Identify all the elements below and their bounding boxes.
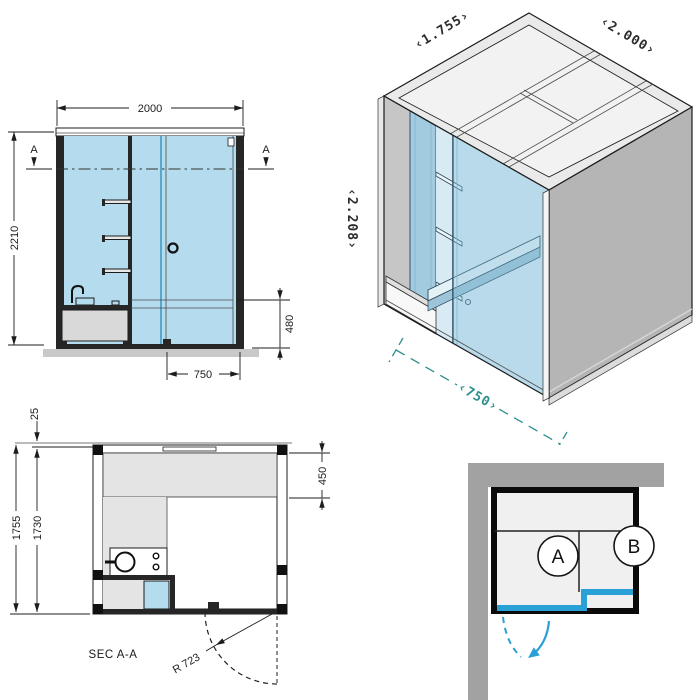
isometric-view: ‹1.755› ‹2.000› ‹2.208› ‹750› — [330, 0, 700, 445]
dim-label-radius: R 723 — [171, 651, 202, 676]
plan-sink-unit — [105, 548, 167, 577]
iso-dim-door: ‹750› — [455, 380, 501, 415]
dim-label-overhang: 25 — [29, 408, 41, 420]
iso-dim-depth: ‹1.755› — [412, 8, 473, 53]
sink-basin-icon — [116, 553, 135, 572]
zone-a-circle: A — [538, 536, 578, 576]
section-label: A — [262, 144, 270, 156]
plan-section-view: R 723 25 1755 1730 — [0, 400, 360, 700]
right-post — [236, 136, 244, 349]
iso-dim-height: ‹2.208› — [344, 188, 359, 250]
front-corner-post — [543, 190, 549, 401]
plan-shower-glass — [144, 581, 169, 609]
dim-label-depth-clear: 1730 — [32, 516, 44, 540]
iso-dim-width: ‹2.000› — [597, 14, 658, 59]
dim-depth-overall: 1755 — [10, 445, 90, 614]
dim-label-bench: 450 — [317, 467, 329, 485]
technical-drawing-sheet: A A 2000 2210 — [0, 0, 700, 700]
door-swing: R 723 — [171, 612, 277, 684]
dim-label-width: 2000 — [138, 103, 162, 115]
placement-diagram: A B — [455, 455, 700, 700]
dim-depth-clear: 1730 — [31, 447, 95, 612]
door-swing-arrow — [503, 617, 549, 658]
front-elevation-view: A A 2000 2210 — [0, 85, 330, 400]
dim-label-counter: 480 — [284, 315, 296, 333]
zone-a-label: A — [552, 547, 565, 568]
dim-label-door: 750 — [194, 369, 212, 381]
top-corner-fitting — [228, 138, 234, 146]
mid-partition-post — [128, 136, 132, 347]
dim-overall-height: 2210 — [8, 132, 54, 345]
dim-roof-overhang: 25 — [29, 408, 41, 441]
ground-line — [43, 349, 259, 357]
section-title: SEC A-A — [89, 649, 138, 661]
plan-room — [15, 443, 292, 614]
dim-label-depth-overall: 1755 — [11, 516, 23, 540]
zone-b-label: B — [628, 537, 641, 558]
section-label: A — [30, 144, 38, 156]
bench-strip — [103, 453, 277, 497]
plan-front-wall — [93, 609, 287, 614]
dim-overall-width: 2000 — [57, 100, 243, 126]
zone-b-circle: B — [614, 526, 654, 566]
dim-bench-depth: 450 — [289, 441, 330, 510]
section-marker-left: A — [30, 144, 38, 166]
dim-label-height: 2210 — [9, 226, 21, 250]
section-marker-right: A — [262, 144, 270, 166]
